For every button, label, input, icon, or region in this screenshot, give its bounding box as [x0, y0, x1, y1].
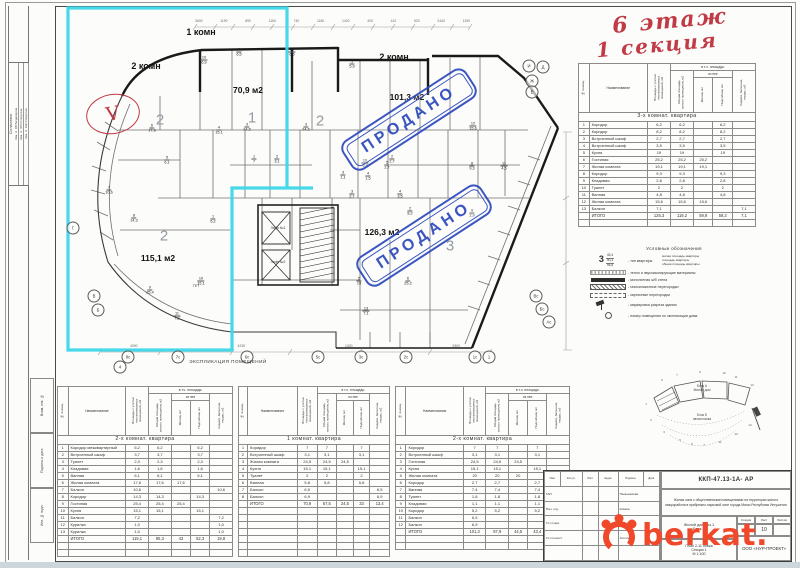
key-plan-axis-number: 13	[750, 383, 753, 387]
explication-table: № помещ. Наименование Площадь с учетом н…	[238, 386, 390, 557]
num-symbol-icon	[605, 312, 612, 319]
key-plan-axis-number: 3	[663, 430, 665, 434]
hatch-symbol-icon	[590, 284, 626, 290]
highlight-outline	[68, 8, 313, 350]
key-plan-axis-number: 1	[645, 402, 647, 406]
legend-item: - номер помещения по экспликации дома	[588, 312, 760, 319]
legend-item: - кирпичные перегородки	[588, 293, 760, 298]
drawing-sheet: 2 комн1 комн2 комн70,9 м2101,3 м2115,1 м…	[0, 0, 800, 568]
legend-type-labels: жилая площадь квартирыплощадь квартирыоб…	[662, 255, 700, 267]
key-plan-axis-number: 7	[676, 373, 678, 377]
legend-item-text: - маркировка разреза здания	[628, 303, 677, 307]
legend-symbol-insul	[588, 270, 628, 275]
legend-symbol-num	[588, 312, 628, 319]
document-code: ККП-47.13-1А- АР	[661, 471, 791, 489]
legend-symbol-solid	[588, 278, 628, 282]
key-plan-axis-number: 10	[722, 371, 725, 375]
explication-table-1room: № помещ. Наименование Площадь с учетом н…	[238, 386, 390, 557]
legend-title: Условные обозначения	[588, 246, 760, 251]
key-plan-axis-number: 6	[691, 442, 693, 446]
agreed-rows: Зам. гл. ОВ БагдасароваЗам. гл. ЭТО Спек…	[14, 63, 29, 185]
apartment-type-symbol: 3 43,490,395,8	[588, 254, 628, 268]
key-plan-axis-number: 11	[718, 440, 721, 444]
agreed-strip: Согласовано Зам. гл. ОВ БагдасароваЗам. …	[8, 62, 28, 186]
berkat-logo-icon	[596, 512, 642, 558]
legend-item-text: - монолитная ж/б стена	[628, 278, 667, 282]
sheets-label: Листов	[773, 516, 791, 524]
key-plan-axis-number: 2	[650, 418, 652, 422]
legend-item: - газосиликатные перегородки	[588, 284, 760, 290]
frame-attribute-cell: Инв. № подл.	[30, 488, 54, 543]
sheets-value	[773, 524, 791, 536]
explication-table-2room-left: № помещ. Наименование Площадь с учетом н…	[57, 386, 233, 557]
legend-item: - маркировка разреза здания	[588, 301, 760, 310]
check-icon: V	[104, 102, 121, 126]
key-plan-axis-number: 14	[748, 423, 751, 427]
frame-attribute-cell: Подпись и дата	[30, 433, 54, 488]
dash-symbol-icon	[590, 293, 626, 298]
key-plan-axis-number: 9	[699, 370, 701, 374]
type-symbol-areas: 43,490,395,8	[606, 254, 614, 268]
type-symbol-number: 3	[599, 254, 604, 268]
key-plan-axis-number: 6	[661, 378, 663, 382]
agreed-row: Зам. гл. АиК Спекулова	[24, 63, 29, 185]
frame-attribute-cell: Взам. инв. №	[30, 378, 54, 433]
legend-item-text: - газосиликатные перегородки	[628, 285, 678, 289]
explication-table: № помещ. Наименование Площадь с учетом н…	[578, 63, 756, 227]
key-plan: Блок А Жилой дом Блок Б автостоянка 6791…	[632, 360, 772, 465]
legend-item-text: - тепло и звукоизолирующие материалы	[628, 271, 696, 275]
legend-item: - тепло и звукоизолирующие материалы	[588, 270, 760, 275]
flag-symbol-icon	[601, 301, 616, 310]
legend-symbol-hatch	[588, 284, 628, 290]
legend: Условные обозначения 3 43,490,395,8 - ти…	[588, 246, 760, 322]
explication-heading: ЭКСПЛИКАЦИЯ ПОМЕЩЕНИЙ	[158, 359, 298, 364]
frame-attribute-strip: Взам. инв. №Подпись и датаИнв. № подл.	[30, 378, 54, 544]
key-plan-axis-number: 5	[679, 438, 681, 442]
legend-item: - монолитная ж/б стена	[588, 278, 760, 282]
legend-items: - тепло и звукоизолирующие материалы- мо…	[588, 270, 760, 319]
watermark[interactable]: berkat.	[596, 512, 768, 558]
key-plan-axis-number: 7	[703, 443, 705, 447]
key-plan-block-a-label: Блок А Жилой дом	[694, 385, 711, 393]
key-plan-axis-number: 13	[734, 432, 737, 436]
solid-symbol-icon	[591, 278, 625, 282]
watermark-text: berkat.	[642, 518, 768, 553]
explication-table-3room: № помещ. Наименование Площадь с учетом н…	[578, 63, 756, 227]
key-plan-block-b-label: Блок Б автостоянка	[693, 414, 711, 422]
legend-item-text: - номер помещения по экспликации дома	[628, 314, 697, 318]
explication-table: № помещ. Наименование Площадь с учетом н…	[57, 386, 233, 557]
key-plan-axis-number: 11	[734, 375, 737, 379]
legend-item-text: - кирпичные перегородки	[628, 293, 670, 297]
insul-symbol-icon	[590, 270, 626, 275]
legend-symbol-flag	[588, 301, 628, 310]
legend-type-row: 3 43,490,395,8 - тип квартиры жилая площ…	[588, 254, 760, 268]
legend-type-caption: - тип квартиры	[628, 259, 662, 263]
legend-symbol-dash	[588, 293, 628, 298]
